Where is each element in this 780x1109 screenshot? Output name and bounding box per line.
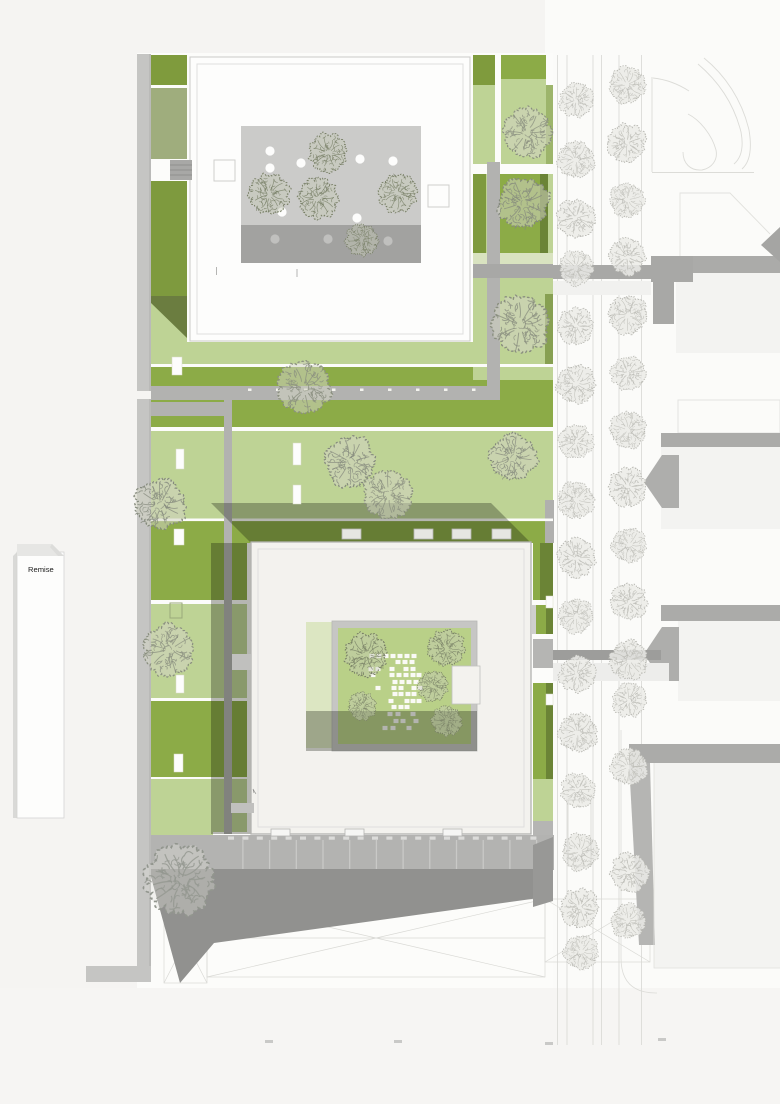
svg-text:Remise: Remise	[28, 565, 54, 574]
